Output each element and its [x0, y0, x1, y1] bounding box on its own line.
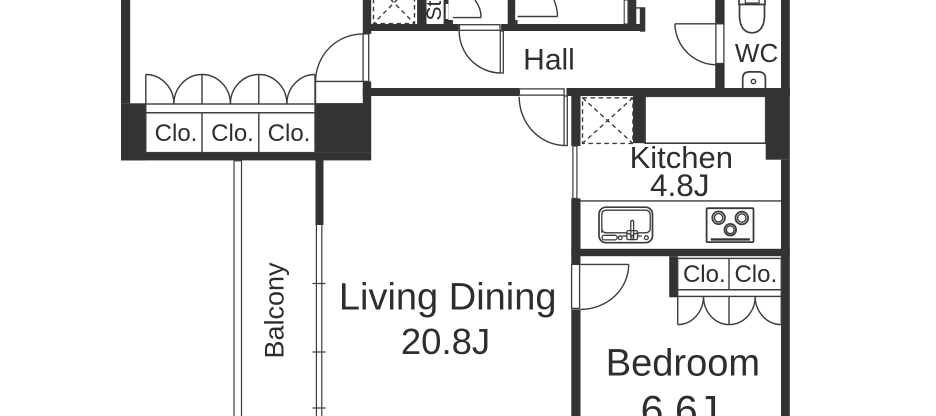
svg-text:20.8J: 20.8J	[401, 321, 490, 362]
svg-text:6.6J: 6.6J	[641, 387, 719, 416]
svg-text:Clo.: Clo.	[155, 120, 198, 147]
svg-text:Living Dining: Living Dining	[339, 277, 557, 319]
svg-text:Hall: Hall	[523, 44, 575, 77]
svg-text:4.8J: 4.8J	[650, 167, 710, 203]
svg-text:Clo.: Clo.	[683, 261, 726, 288]
svg-text:Clo.: Clo.	[268, 120, 311, 147]
svg-text:St.: St.	[423, 0, 446, 21]
svg-text:Bedroom: Bedroom	[606, 343, 760, 385]
svg-text:Clo.: Clo.	[734, 261, 777, 288]
svg-text:WC: WC	[735, 38, 778, 68]
svg-text:Balcony: Balcony	[260, 262, 290, 359]
svg-text:Clo.: Clo.	[211, 120, 254, 147]
